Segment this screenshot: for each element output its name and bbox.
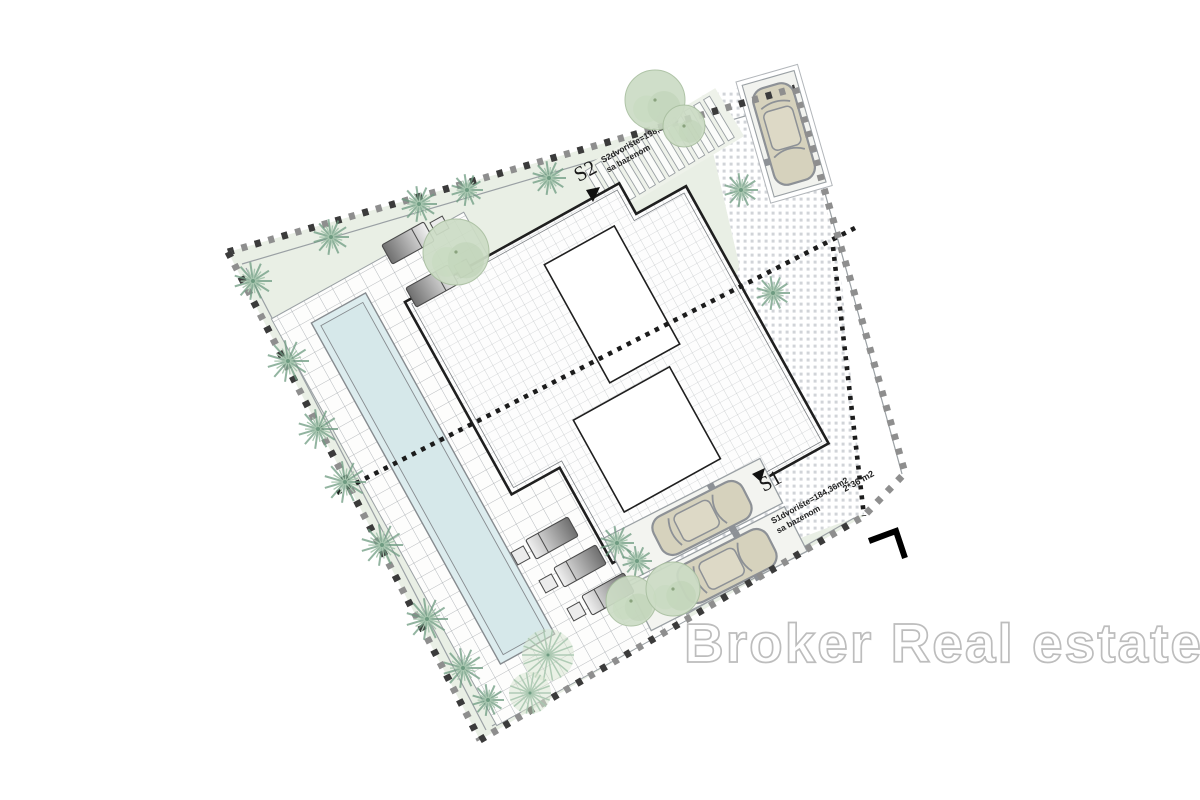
corner-mark [869,531,905,558]
round-tree-icon [663,105,705,147]
site-plan: S2 S1 S2dvorište=198,86m2 sa bazenom S1d… [0,0,1200,800]
watermark: Broker Real estate [684,612,1200,674]
round-tree-icon [423,219,489,285]
fan-palm-icon [509,672,551,714]
round-tree-icon [646,562,700,616]
